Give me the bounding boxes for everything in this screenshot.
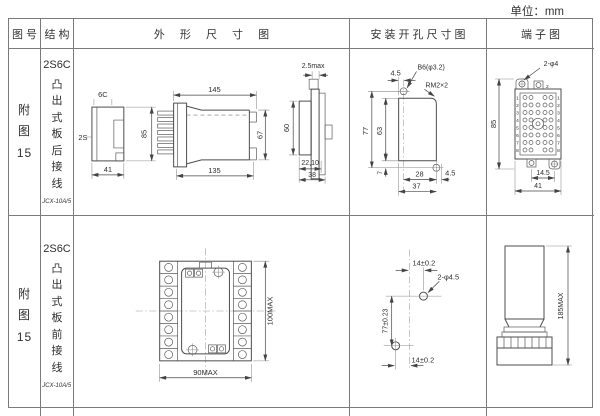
dim-38: 38 — [308, 171, 316, 178]
corner-radius-label: RM2×2 — [425, 82, 448, 89]
row2-structure: 2S6C 凸出式板前接线 JCX-10A/5 — [41, 216, 74, 416]
dimension-table: 图 号 结 构 外 形 尺 寸 图 安装开孔尺寸图 端子图 附 图 15 2S6… — [8, 18, 593, 408]
pin-number-right-8: 8 — [557, 148, 560, 154]
pin-number-left-6: 6 — [516, 133, 519, 139]
terminal-comb — [158, 111, 174, 154]
dim-7: 7 — [378, 171, 384, 174]
pin-number-left-7: 7 — [516, 140, 519, 146]
dim-185max: 185MAX — [558, 292, 565, 319]
dim-6c: 6C — [98, 90, 108, 99]
pin-number-left-5: 5 — [516, 125, 519, 131]
pin-number-right-3: 3 — [557, 110, 560, 116]
pin-number-left-3: 3 — [516, 110, 519, 116]
fig-char: 图 — [18, 121, 31, 143]
unit-label: 单位：mm — [510, 3, 564, 19]
pin-numbers-right: 1 2 3 4 5 6 7 8 — [557, 95, 560, 154]
fig-number: 15 — [17, 327, 32, 349]
dim-100max: 100MAX — [265, 296, 274, 325]
dim-85-terminal: 85 — [489, 119, 498, 127]
dim-22-10: 22,10 — [301, 159, 319, 166]
fig-char: 图 — [18, 305, 31, 327]
header-install-dims: 安装开孔尺寸图 — [350, 19, 487, 49]
row2-install-drawing: 14±0.2 2-φ4.5 77±0.23 14±0.2 — [350, 224, 486, 409]
hole-spec-label: 2-φ4.5 — [437, 272, 459, 281]
dim-41: 41 — [104, 164, 112, 173]
structure-mounting: 凸出式板前接线 — [51, 261, 64, 377]
row2-install-cell: 14±0.2 2-φ4.5 77±0.23 14±0.2 — [350, 216, 487, 416]
pin-number-left-1: 1 — [516, 95, 519, 101]
pin-number-right-6: 6 — [557, 133, 560, 139]
dim-28: 28 — [415, 169, 423, 178]
header-structure: 结 构 — [41, 19, 74, 49]
row1-outline-cell: 6C 2S 85 41 145 — [74, 49, 350, 216]
row1-terminal-drawing: 2-φ4 2 — [487, 49, 594, 216]
dim-4.5-top: 4.5 — [390, 68, 400, 77]
fig-char: 附 — [18, 284, 31, 306]
pin-number-right-7: 7 — [557, 140, 560, 146]
header-outline-dims: 外 形 尺 寸 图 — [74, 19, 350, 49]
dim-67: 67 — [255, 130, 264, 138]
dim-60: 60 — [282, 123, 291, 131]
dim-41-terminal: 41 — [534, 183, 542, 190]
pin-number-left-2: 2 — [516, 103, 519, 109]
dim-63: 63 — [375, 126, 384, 134]
dim-77: 77 — [361, 126, 370, 134]
mounting-hole-label: 2-φ4 — [544, 61, 559, 68]
structure-relay-type: JCX-10A/5 — [43, 382, 72, 389]
dim-2.5max: 2.5max — [302, 63, 325, 70]
dim-14-bottom: 14±0.2 — [412, 355, 435, 364]
panel-profile: 2.5max 60 22,10 38 — [282, 63, 332, 184]
structure-model: 2S6C — [43, 243, 71, 255]
row1-install-drawing: 4.5 B6(φ3.2) RM2×2 77 63 7 28 37 — [350, 49, 486, 216]
header-terminal-diagram: 端子图 — [487, 19, 594, 49]
pin-number-right-2: 2 — [557, 103, 560, 109]
dim-90max: 90MAX — [193, 367, 218, 376]
contact-grid — [523, 95, 553, 152]
structure-relay-type: JCX-10A/5 — [43, 198, 72, 205]
fig-char: 附 — [18, 100, 31, 122]
dim-77-tol: 77±0.23 — [383, 308, 390, 333]
hole-spec-label: B6(φ3.2) — [418, 64, 445, 71]
row2-outline-cell: 90MAX 100MAX — [74, 216, 350, 416]
row2-terminal-drawing: 185MAX — [487, 224, 594, 409]
pin-number-left-4: 4 — [516, 118, 519, 124]
row1-outline-drawing: 6C 2S 85 41 145 — [74, 49, 349, 216]
pin-number-right-4: 4 — [557, 118, 560, 124]
dim-145: 145 — [208, 85, 220, 94]
row1-fig-no: 附 图 15 — [9, 49, 41, 216]
pin-number-left-8: 8 — [516, 148, 519, 154]
dim-14.5: 14.5 — [536, 170, 550, 177]
side-view: 145 135 67 — [158, 85, 270, 180]
row2-fig-no: 附 图 15 — [9, 216, 41, 416]
pin-numbers-left: 1 2 3 4 5 6 7 8 — [516, 95, 519, 154]
fig-number: 15 — [17, 143, 32, 165]
front-view: 6C 2S 85 41 — [78, 90, 155, 179]
dim-135: 135 — [208, 165, 220, 174]
dim-14-top: 14±0.2 — [413, 258, 436, 267]
row2-outline-drawing: 90MAX 100MAX — [74, 224, 349, 409]
structure-mounting: 凸出式板后接线 — [51, 77, 64, 193]
dim-4.5-right: 4.5 — [445, 168, 455, 177]
pin-number-right-5: 5 — [557, 125, 560, 131]
row1-terminal-cell: 2-φ4 2 — [487, 49, 594, 216]
header-fig-no: 图 号 — [9, 19, 41, 49]
dim-37: 37 — [412, 181, 420, 190]
structure-model: 2S6C — [43, 59, 71, 71]
row1-install-cell: 4.5 B6(φ3.2) RM2×2 77 63 7 28 37 — [350, 49, 487, 216]
row2-terminal-cell: 185MAX — [487, 216, 594, 416]
pin-number-right-1: 1 — [557, 95, 560, 101]
dim-2s: 2S — [78, 132, 87, 141]
row1-structure: 2S6C 凸出式板后接线 JCX-10A/5 — [41, 49, 74, 216]
dim-85: 85 — [140, 129, 149, 137]
